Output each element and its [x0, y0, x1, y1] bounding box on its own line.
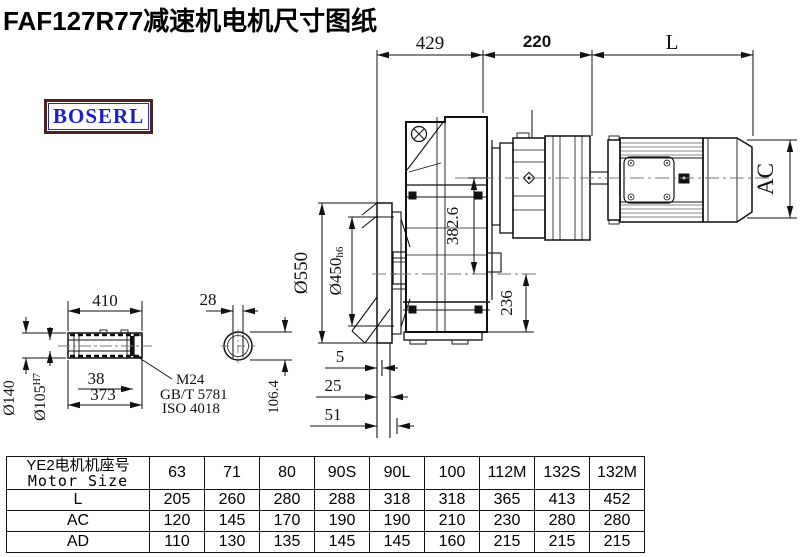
mounting-wall [352, 203, 397, 438]
dim-key-height: 106.4 [266, 380, 282, 414]
value-cell: 110 [150, 532, 205, 553]
dim-373: 373 [90, 385, 116, 404]
value-cell: 210 [425, 511, 480, 532]
value-cell: 280 [260, 490, 315, 511]
dim-bore-value: Ø105 [32, 385, 49, 421]
value-cell: 365 [480, 490, 535, 511]
size-col-header: 132M [590, 457, 645, 490]
value-cell: 318 [370, 490, 425, 511]
size-col-header: 90S [315, 457, 370, 490]
value-cell: 215 [480, 532, 535, 553]
dim-adapter-width: 220 [523, 32, 551, 51]
row-label: AD [7, 532, 150, 553]
technical-drawing: 429 220 L [0, 0, 800, 460]
dim-foot-height: 236 [497, 290, 516, 316]
motor-size-header-en: Motor Size [7, 474, 149, 489]
size-col-header: 132S [535, 457, 590, 490]
dim-motor-length: L [666, 30, 679, 54]
dim-shaft-od: Ø140 [1, 380, 18, 416]
dim-axis-height: 382.6 [443, 207, 462, 245]
value-cell: 160 [425, 532, 480, 553]
dim-offset-25: 25 [325, 376, 342, 395]
centerlines [372, 178, 770, 274]
dim-motor-diameter: AC [753, 163, 778, 195]
size-col-header: 71 [205, 457, 260, 490]
drawing-sheet: FAF127R77减速机电机尺寸图纸 BOSERL 429 220 L [0, 0, 800, 557]
value-cell: 120 [150, 511, 205, 532]
input-adapter [492, 110, 608, 300]
value-cell: 145 [315, 532, 370, 553]
dim-key-width: 28 [200, 290, 217, 309]
dim-gearbox-width: 429 [416, 33, 445, 54]
dim-spigot-value: Ø450 [326, 258, 345, 296]
value-cell: 135 [260, 532, 315, 553]
size-col-header: 90L [370, 457, 425, 490]
value-cell: 318 [425, 490, 480, 511]
size-col-header: 112M [480, 457, 535, 490]
motor-size-header: YE2电机机座号Motor Size [7, 457, 150, 490]
dim-offset-51: 51 [325, 405, 342, 424]
row-label: L [7, 490, 150, 511]
value-cell: 130 [205, 532, 260, 553]
end-view-dims [206, 305, 292, 376]
motor [608, 136, 752, 224]
value-cell: 280 [590, 511, 645, 532]
value-cell: 413 [535, 490, 590, 511]
motor-size-table: YE2电机机座号Motor Size63718090S90L100112M132… [6, 456, 645, 553]
dim-bore-tol: H7 [32, 373, 43, 385]
value-cell: 452 [590, 490, 645, 511]
label-iso-standard: ISO 4018 [162, 401, 220, 417]
value-cell: 215 [535, 532, 590, 553]
row-label: AC [7, 511, 150, 532]
value-cell: 260 [205, 490, 260, 511]
size-col-header: 80 [260, 457, 315, 490]
top-dimension-lines [377, 50, 753, 203]
dim-spigot-tol: h6 [334, 246, 346, 258]
size-col-header: 100 [425, 457, 480, 490]
dim-spigot: Ø450h6 [326, 246, 346, 295]
label-thread: M24 [176, 372, 205, 388]
value-cell: 215 [590, 532, 645, 553]
size-col-header: 63 [150, 457, 205, 490]
value-cell: 288 [315, 490, 370, 511]
value-cell: 170 [260, 511, 315, 532]
value-cell: 190 [370, 511, 425, 532]
value-cell: 280 [535, 511, 590, 532]
dim-offset-5: 5 [336, 347, 345, 366]
dim-bore: Ø105H7 [32, 373, 49, 421]
value-cell: 145 [205, 511, 260, 532]
end-view-centerlines [221, 329, 255, 363]
value-cell: 145 [370, 532, 425, 553]
value-cell: 230 [480, 511, 535, 532]
hollow-shaft-view [68, 330, 172, 379]
value-cell: 205 [150, 490, 205, 511]
dim-shaft-length: 410 [92, 291, 118, 310]
dim-flange-od: Ø550 [291, 252, 312, 294]
value-cell: 190 [315, 511, 370, 532]
